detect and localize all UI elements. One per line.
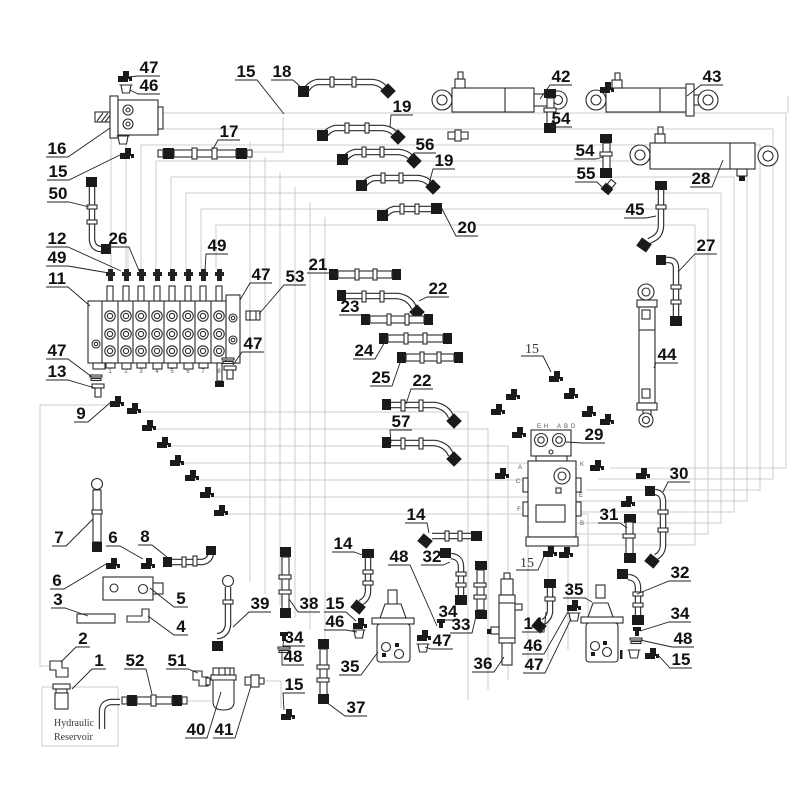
tiny-label-A-13: A: [518, 465, 522, 471]
callout-29-46: 29: [585, 425, 604, 444]
callout-13-27: 13: [48, 362, 67, 381]
leader-line-15-5: [235, 80, 284, 114]
hose-54b: [600, 134, 612, 178]
tiny-label-E-8: E: [537, 424, 541, 430]
fitting-53: [246, 311, 260, 320]
elbow-fittings-staircase: [110, 396, 228, 516]
callout-46-66: 46: [524, 636, 543, 655]
callout-5-74: 5: [176, 589, 185, 608]
callout-47-17: 47: [252, 265, 271, 284]
hose-33: [474, 561, 487, 619]
callout-24-22: 24: [355, 341, 374, 360]
tiny-label-C-15: C: [516, 479, 521, 485]
hose-39: [212, 576, 234, 652]
callout-28-35: 28: [692, 169, 711, 188]
callout-18-6: 18: [273, 62, 292, 81]
hose-17: [158, 148, 252, 159]
tiny-label-6-5: 6: [186, 369, 190, 375]
callout-54-32: 54: [552, 109, 571, 128]
callout-40-80: 40: [187, 720, 206, 739]
callout-35-68: 35: [565, 580, 584, 599]
callout-15-54: 15: [326, 594, 345, 613]
elbow-6a: [106, 558, 120, 569]
callout-51-79: 51: [168, 651, 187, 670]
callout-30-40: 30: [670, 464, 689, 483]
hose-30: [644, 486, 668, 569]
elbow-15-right: [645, 648, 659, 659]
callout-17-4: 17: [220, 122, 239, 141]
callout-6-70: 6: [108, 528, 117, 547]
callout-22-24: 22: [413, 371, 432, 390]
plug-34-right: [633, 627, 641, 636]
tiny-label-E-16: E: [579, 493, 583, 499]
callout-15-3: 15: [49, 162, 68, 181]
callout-6-72: 6: [52, 571, 61, 590]
leader-line-53-18: [259, 285, 306, 314]
callout-19-7: 19: [393, 97, 412, 116]
callout-53-18: 53: [286, 267, 305, 286]
leader-line-6-70: [106, 546, 143, 559]
callout-47-0: 47: [140, 58, 159, 77]
leader-line-32-42: [637, 581, 691, 594]
reservoir-label-line2: Reservoir: [54, 732, 94, 743]
callout-14-51: 14: [334, 534, 353, 553]
elbow-51: [193, 671, 210, 686]
callout-9-28: 9: [76, 404, 85, 423]
callout-48-57: 48: [284, 647, 303, 666]
hose-52: [122, 695, 187, 706]
hose-27: [656, 255, 682, 326]
hose-37: [317, 639, 329, 704]
bent-tube: [102, 702, 120, 729]
elbow-15-bottom: [281, 709, 295, 720]
tiny-label-B-11: B: [564, 424, 568, 430]
callout-47-26: 47: [48, 341, 67, 360]
callout-55-34: 55: [577, 164, 596, 183]
leader-line-19-7: [390, 115, 413, 127]
callout-1-77: 1: [94, 651, 103, 670]
callout-19-9: 19: [435, 151, 454, 170]
hose-31: [621, 496, 636, 563]
cylinder-44: [637, 284, 657, 427]
callout-25-23: 25: [372, 368, 391, 387]
callout-35-58: 35: [341, 657, 360, 676]
hose-14b: [350, 549, 374, 615]
callout-26-13: 26: [109, 229, 128, 248]
hose-25: [397, 352, 463, 363]
tiny-label-3-2: 3: [139, 369, 143, 375]
elbow-47-pair1: [417, 630, 431, 641]
plate-5: [103, 577, 163, 600]
cylinder-43: [586, 73, 718, 116]
callout-14-65: 14: [524, 614, 543, 633]
hose-19a: [317, 123, 406, 145]
leader-line-52-78: [124, 669, 152, 694]
hose-8: [163, 546, 216, 567]
cylinder-36: [487, 573, 522, 665]
leader-line-27-37: [678, 254, 717, 272]
callout-45-36: 45: [626, 200, 645, 219]
leader-line-47-17: [240, 283, 272, 300]
reservoir-label-line1: Hydraulic: [54, 718, 95, 729]
hose-38: [279, 547, 291, 618]
callout-48-44: 48: [674, 629, 693, 648]
tiny-label-B-18: B: [580, 521, 584, 527]
callout-11-16: 11: [48, 269, 66, 288]
tiny-label-2-1: 2: [124, 369, 128, 375]
hose-21: [329, 269, 401, 280]
hose-57: [382, 437, 462, 467]
callout-47-67: 47: [525, 655, 544, 674]
pump-35-right: [581, 585, 623, 662]
callout-57-25: 57: [392, 412, 411, 431]
callout-39-52: 39: [251, 594, 270, 613]
callout-15-59: 15: [285, 675, 304, 694]
callout-15-5: 15: [237, 62, 256, 81]
callout-47-29: 47: [244, 334, 263, 353]
callout-36-61: 36: [474, 654, 493, 673]
hose-19b: [356, 173, 441, 195]
callout-21-19: 21: [309, 255, 328, 274]
leader-line-11-16: [46, 287, 90, 306]
filter-40: [211, 668, 236, 710]
callout-41-81: 41: [215, 720, 234, 739]
callout-27-37: 27: [697, 236, 716, 255]
tiny-label-H-9: H: [544, 424, 548, 430]
callout-7-69: 7: [54, 528, 63, 547]
callout-12-12: 12: [48, 229, 67, 248]
callout-22-20: 22: [429, 279, 448, 298]
washer-48-right: [630, 638, 642, 644]
callout-16-2: 16: [48, 139, 67, 158]
leader-line-15-39: [521, 356, 551, 372]
tiny-label-7-6: 7: [201, 369, 205, 375]
hose-18: [298, 77, 396, 99]
leader-line-2-76: [61, 647, 90, 662]
tiny-label-D-12: D: [571, 424, 576, 430]
callout-15-47: 15: [520, 556, 534, 571]
callout-52-78: 52: [126, 651, 145, 670]
callout-43-31: 43: [703, 67, 722, 86]
leader-line-8-71: [138, 545, 167, 557]
callout-32-49: 32: [423, 547, 442, 566]
callout-49-14: 49: [48, 248, 67, 267]
callout-32-42: 32: [671, 563, 690, 582]
leader-line-14-48: [405, 523, 429, 533]
callout-56-8: 56: [416, 135, 435, 154]
tiny-label-1-0: 1: [108, 369, 112, 375]
callout-42-30: 42: [552, 67, 571, 86]
callout-34-43: 34: [671, 604, 690, 623]
hydraulic-parts-diagram: Hydraulic Reservoir: [0, 0, 800, 800]
fitting-41: [245, 675, 264, 687]
cup-47-pair2: [568, 613, 581, 621]
callout-31-41: 31: [600, 505, 619, 524]
hose-50: [86, 177, 111, 254]
callout-15-39: 15: [525, 342, 539, 357]
callout-4-75: 4: [176, 617, 186, 636]
leader-line-13-27: [46, 380, 95, 388]
callout-44-38: 44: [658, 345, 677, 364]
callout-46-55: 46: [326, 612, 345, 631]
leader-line-39-52: [233, 612, 271, 627]
callout-49-15: 49: [208, 236, 227, 255]
callout-46-1: 46: [140, 76, 159, 95]
bar-3: [77, 614, 115, 623]
swivel-joint-29: [523, 430, 581, 546]
callout-48-50: 48: [390, 547, 409, 566]
callout-20-10: 20: [458, 218, 477, 237]
pin-right: [620, 650, 623, 659]
hose-24: [379, 333, 452, 344]
callout-34-56: 34: [285, 628, 304, 647]
hose-7: [92, 479, 103, 553]
pump-35-left: [372, 590, 414, 662]
leader-line-15-59: [283, 693, 305, 710]
callout-54-33: 54: [576, 141, 595, 160]
leader-line-1-77: [72, 669, 106, 689]
callout-38-53: 38: [300, 594, 319, 613]
tiny-label-5-4: 5: [170, 369, 174, 375]
hose-32-left: [440, 548, 467, 605]
tiny-label-A-10: A: [557, 424, 561, 430]
hydraulic-reservoir: Hydraulic Reservoir: [42, 687, 118, 746]
tiny-label-F-17: F: [517, 507, 521, 513]
suction-tube-1: [53, 684, 70, 709]
elbow-46-pair2: [567, 600, 581, 611]
tiny-label-K-14: K: [580, 462, 584, 468]
hose-23: [361, 314, 433, 325]
cup-right: [628, 650, 641, 658]
callout-15-45: 15: [672, 650, 691, 669]
fitting-inline-top: [448, 130, 468, 141]
callout-37-60: 37: [347, 698, 366, 717]
callout-2-76: 2: [78, 629, 87, 648]
bracket-4: [127, 609, 149, 622]
callout-47-64: 47: [433, 631, 452, 650]
callout-14-48: 14: [407, 505, 426, 524]
hose-20: [377, 203, 442, 221]
callout-23-21: 23: [341, 297, 360, 316]
elbow-2: [50, 661, 68, 677]
tiny-label-4-3: 4: [155, 369, 159, 375]
callout-8-71: 8: [140, 527, 149, 546]
elbow-6b: [141, 558, 155, 569]
callout-50-11: 50: [49, 184, 68, 203]
callout-3-73: 3: [53, 590, 62, 609]
callout-33-63: 33: [452, 615, 471, 634]
plug-47-13-left: [90, 375, 104, 397]
